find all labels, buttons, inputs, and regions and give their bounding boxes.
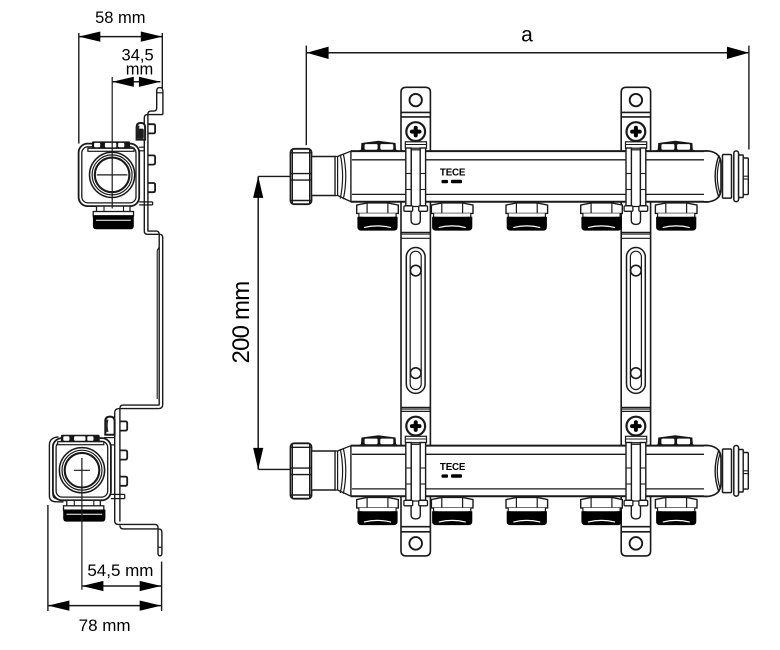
svg-text:54,5 mm: 54,5 mm bbox=[87, 561, 153, 580]
svg-text:TECE: TECE bbox=[440, 462, 466, 473]
svg-text:58 mm: 58 mm bbox=[95, 9, 145, 27]
svg-text:200 mm: 200 mm bbox=[228, 282, 255, 364]
svg-text:78 mm: 78 mm bbox=[79, 616, 131, 635]
svg-text:TECE: TECE bbox=[440, 168, 466, 179]
svg-text:a: a bbox=[521, 24, 533, 47]
svg-text:mm: mm bbox=[126, 60, 154, 78]
